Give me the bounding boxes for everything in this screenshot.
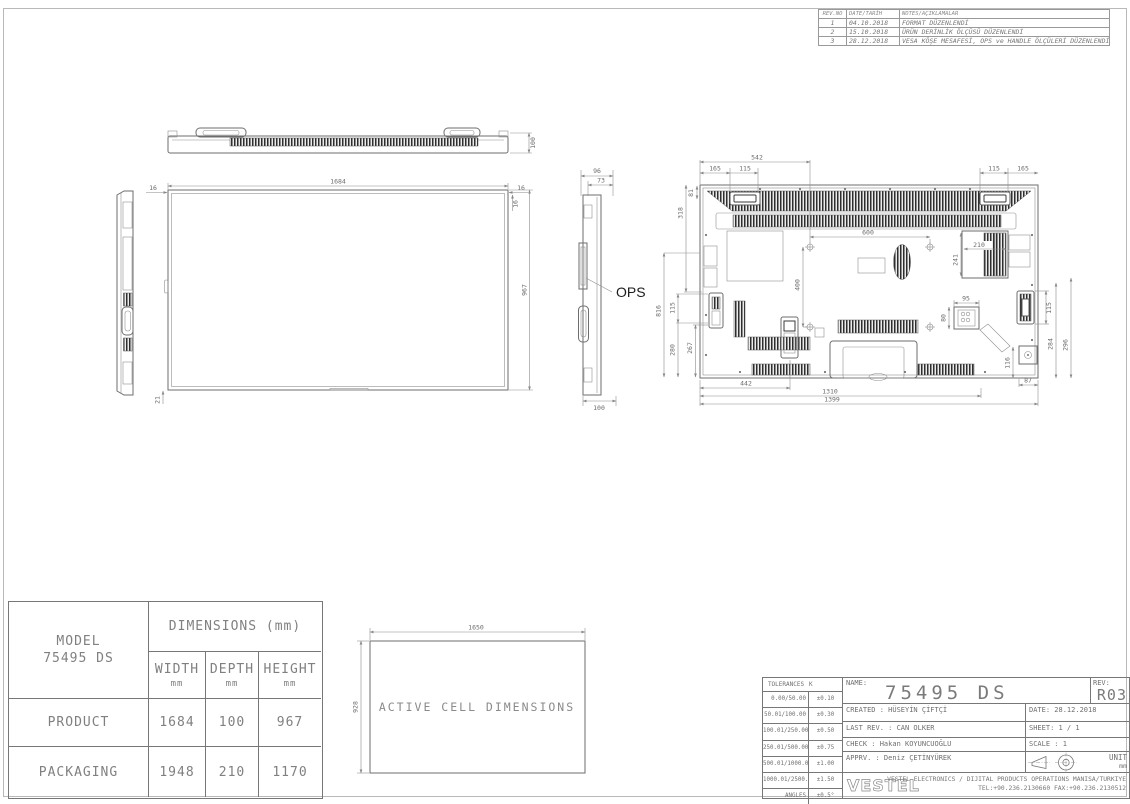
dim-bezel-left: 16 — [149, 184, 157, 192]
tol-value: ±0.5° — [809, 789, 842, 804]
tol-value: ±1.00 — [809, 757, 842, 772]
dim-vesa-offset: 542 — [751, 154, 763, 162]
drawing-name: 75495 DS — [885, 682, 1009, 704]
title-block: TOLERANCES K 0.00/50.00±0.10 50.01/100.0… — [762, 677, 1130, 799]
packaging-depth: 210 — [206, 747, 259, 797]
back-view: 542 165 115 115 165 81 318 816 115 280 2… — [655, 154, 1072, 407]
tol-value: ±0.50 — [809, 724, 842, 739]
dim-top-depth: 100 — [529, 137, 537, 149]
rev-value: R03 — [1097, 686, 1127, 704]
dim-bezel-right: 16 — [517, 184, 525, 192]
front-outer — [168, 190, 508, 390]
front-bezel-line — [172, 194, 505, 387]
tol-range: 500.01/1000.00 — [763, 757, 809, 772]
dimensions-table: MODEL 75495 DS DIMENSIONS (mm) WIDTHmm D… — [8, 601, 323, 799]
dim-296: 296 — [1062, 339, 1070, 351]
product-depth: 100 — [206, 699, 259, 747]
tol-range: 100.01/250.00 — [763, 724, 809, 739]
scale: SCALE : 1 — [1026, 738, 1129, 751]
projection-symbol-icon — [1026, 752, 1086, 773]
unit-value: mm — [1109, 762, 1127, 770]
company-info: VESTEL ELECTRONICS / DIJITAL PRODUCTS OP… — [887, 776, 1126, 793]
tolerances-header: TOLERANCES K — [763, 678, 842, 692]
approved-by: APPRV. : Deniz ÇETİNYÜREK — [843, 752, 1026, 772]
product-height: 967 — [259, 699, 321, 747]
dim-front-width: 1684 — [330, 178, 346, 186]
dim-116: 116 — [1004, 357, 1012, 369]
col-depth: DEPTHmm — [206, 652, 259, 699]
top-view: 100 — [168, 128, 537, 153]
dim-280: 280 — [669, 344, 677, 356]
tol-range: ANGLES — [763, 789, 809, 804]
dim-165-left: 165 — [709, 165, 721, 173]
unit-cell: UNIT mm — [1109, 753, 1127, 770]
logo-row: VESTEL VESTEL ELECTRONICS / DIJITAL PROD… — [843, 773, 1129, 798]
dim-816: 816 — [655, 305, 663, 317]
tol-range: 50.01/100.00 — [763, 708, 809, 723]
dim-1310: 1310 — [822, 388, 838, 396]
name-row: NAME: 75495 DS REV: R03 — [843, 678, 1129, 704]
dim-80: 80 — [940, 314, 948, 322]
rev-cell: REV: R03 — [1091, 678, 1129, 704]
dim-87: 87 — [1024, 377, 1032, 385]
tol-value: ±0.10 — [809, 692, 842, 707]
dim-442: 442 — [740, 380, 752, 388]
dim-95: 95 — [962, 295, 970, 303]
dim-front-height: 967 — [521, 284, 529, 296]
dim-vesa-width: 600 — [862, 229, 874, 237]
back-vent-strip — [733, 215, 1001, 227]
product-width: 1684 — [149, 699, 206, 747]
dim-284: 284 — [1047, 338, 1055, 350]
created-by: CREATED : HÜSEYİN ÇİFTÇİ — [843, 704, 1026, 721]
col-height: HEIGHTmm — [259, 652, 321, 699]
apprv-row: APPRV. : Deniz ÇETİNYÜREK UNIT mm — [843, 752, 1129, 773]
tol-value: ±1.50 — [809, 773, 842, 788]
date: DATE: 28.12.2018 — [1026, 704, 1129, 721]
dim-115-left: 115 — [739, 165, 751, 173]
ir-sensor-bump — [165, 280, 169, 293]
tol-range: 1000.01/2500.00 — [763, 773, 809, 788]
rear-side-profile — [583, 195, 601, 395]
dim-267: 267 — [686, 342, 694, 354]
ops-bay — [727, 231, 783, 281]
company-line2: TEL:+90.236.2130660 FAX:+90.236.2130512 — [978, 785, 1126, 792]
rear-side-view: 96 73 100 OPS — [579, 167, 646, 412]
vesa-holes — [805, 242, 935, 332]
model-label: MODEL — [56, 633, 100, 650]
dim-81: 81 — [687, 189, 695, 197]
dim-bezel-top-right: 16 — [512, 200, 520, 208]
name-label: NAME: — [846, 679, 867, 687]
sheet: SHEET: 1 / 1 — [1026, 722, 1129, 737]
dim-210: 210 — [973, 241, 985, 249]
cable-guide — [980, 324, 1010, 352]
dim-318: 318 — [677, 207, 685, 219]
company-line1: VESTEL ELECTRONICS / DIJITAL PRODUCTS OP… — [887, 776, 1126, 783]
tol-value: ±0.75 — [809, 741, 842, 756]
model-value: 75495 DS — [43, 650, 114, 667]
last-rev-by: LAST REV. : CAN OLKER — [843, 722, 1026, 737]
row-product-label: PRODUCT — [9, 699, 149, 747]
dim-side-total: 96 — [593, 167, 601, 175]
title-block-main: NAME: 75495 DS REV: R03 CREATED : HÜSEYİ… — [843, 678, 1129, 798]
logo-badge — [869, 374, 887, 381]
ops-label: OPS — [616, 284, 646, 300]
packaging-height: 1170 — [259, 747, 321, 797]
unit-label: UNIT — [1109, 753, 1127, 762]
active-cell-view: 1650 928 ACTIVE CELL DIMENSIONS — [352, 624, 586, 774]
created-row: CREATED : HÜSEYİN ÇİFTÇİ DATE: 28.12.201… — [843, 704, 1129, 722]
lastrev-row: LAST REV. : CAN OLKER SHEET: 1 / 1 — [843, 722, 1129, 738]
dim-165-right: 165 — [1017, 165, 1029, 173]
dim-115-right: 115 — [988, 165, 1000, 173]
dim-side-body: 73 — [597, 177, 605, 185]
model-cell: MODEL 75495 DS — [9, 602, 149, 699]
dims-header: DIMENSIONS (mm) — [149, 602, 321, 652]
tolerances-table: TOLERANCES K 0.00/50.00±0.10 50.01/100.0… — [763, 678, 843, 798]
tol-range: 0.00/50.00 — [763, 692, 809, 707]
packaging-width: 1948 — [149, 747, 206, 797]
tol-value: ±0.30 — [809, 708, 842, 723]
row-packaging-label: PACKAGING — [9, 747, 149, 797]
tol-range: 250.01/500.00 — [763, 741, 809, 756]
left-side-view — [117, 191, 133, 395]
dim-1399: 1399 — [824, 396, 840, 404]
dim-front-bottom: 21 — [154, 396, 162, 404]
dim-vesa-height: 400 — [794, 279, 802, 291]
active-cell-label: ACTIVE CELL DIMENSIONS — [379, 700, 575, 714]
checked-by: CHECK : Hakan KOYUNCUOĞLU — [843, 738, 1026, 751]
center-grille — [894, 245, 911, 280]
dim-cell-width: 1650 — [468, 624, 484, 632]
check-row: CHECK : Hakan KOYUNCUOĞLU SCALE : 1 — [843, 738, 1129, 752]
front-view: 1684 16 16 16 967 21 — [146, 178, 533, 405]
dim-side-depth: 100 — [593, 404, 605, 412]
dim-cell-height: 928 — [352, 701, 360, 713]
top-view-vents — [230, 138, 478, 146]
col-width: WIDTHmm — [149, 652, 206, 699]
dim-241: 241 — [952, 254, 960, 266]
dim-115-mid: 115 — [669, 302, 677, 314]
dim-115-handle: 115 — [1045, 302, 1053, 314]
